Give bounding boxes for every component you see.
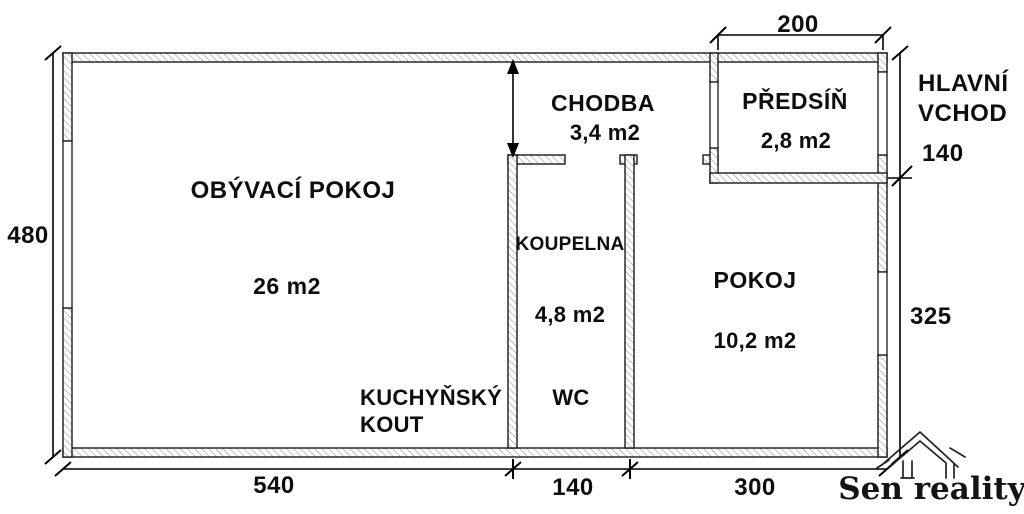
room-labels: OBÝVACÍ POKOJ 26 m2 KUCHYŇSKÝ KOUT CHODB… [191, 87, 848, 437]
kitchenette-label-line1: KUCHYŇSKÝ [360, 385, 502, 410]
openings [63, 72, 887, 355]
wall-bottom [63, 448, 887, 457]
dimension-right-entrance: 140 [922, 140, 964, 167]
bathroom-area: 4,8 m2 [535, 302, 605, 327]
dimension-top-vestibule: 200 [777, 11, 819, 38]
living-room-area: 26 m2 [253, 273, 321, 299]
wall-right-upper [878, 53, 887, 72]
wall-vestibule-left-upper [710, 53, 718, 82]
wall-bathroom-left [508, 155, 517, 448]
main-entrance-label-line2: VCHOD [918, 100, 1007, 127]
dimension-bottom-room: 300 [734, 474, 776, 501]
floor-plan: OBÝVACÍ POKOJ 26 m2 KUCHYŇSKÝ KOUT CHODB… [0, 0, 1024, 514]
dimension-ticks-right [892, 46, 912, 464]
dimension-line-right [888, 53, 912, 457]
wall-left-upper [63, 53, 72, 141]
room-label: POKOJ [713, 267, 796, 293]
floor-plan-svg: OBÝVACÍ POKOJ 26 m2 KUCHYŇSKÝ KOUT CHODB… [0, 0, 1024, 514]
vestibule-door-opening [710, 82, 718, 148]
dimension-right-room: 325 [910, 303, 952, 330]
agency-logo-text: Sen reality [838, 471, 1024, 507]
kitchenette-label-line2: KOUT [360, 412, 424, 437]
vestibule-area: 2,8 m2 [761, 128, 831, 153]
hallway-label: CHODBA [551, 90, 655, 116]
living-room-label: OBÝVACÍ POKOJ [191, 176, 396, 204]
wall-vestibule-bottom [710, 173, 887, 183]
wall-right-lower [878, 355, 887, 457]
main-entrance-door-opening [878, 72, 887, 155]
dimension-left-height: 480 [7, 222, 49, 249]
dimension-bottom-bathroom: 140 [552, 474, 594, 501]
window-right [878, 272, 887, 355]
wall-bathroom-room-divider [625, 155, 634, 448]
window-left [63, 141, 72, 308]
hallway-area: 3,4 m2 [570, 120, 640, 145]
dimension-bottom-living: 540 [253, 472, 295, 499]
wc-label: WC [552, 385, 589, 410]
vestibule-label: PŘEDSÍŇ [742, 87, 848, 114]
main-entrance-label-line1: HLAVNÍ [918, 69, 1009, 97]
room-area: 10,2 m2 [714, 328, 797, 353]
wall-left-lower [63, 308, 72, 457]
wall-top [63, 53, 887, 62]
bathroom-label: KOUPELNA [515, 234, 624, 255]
